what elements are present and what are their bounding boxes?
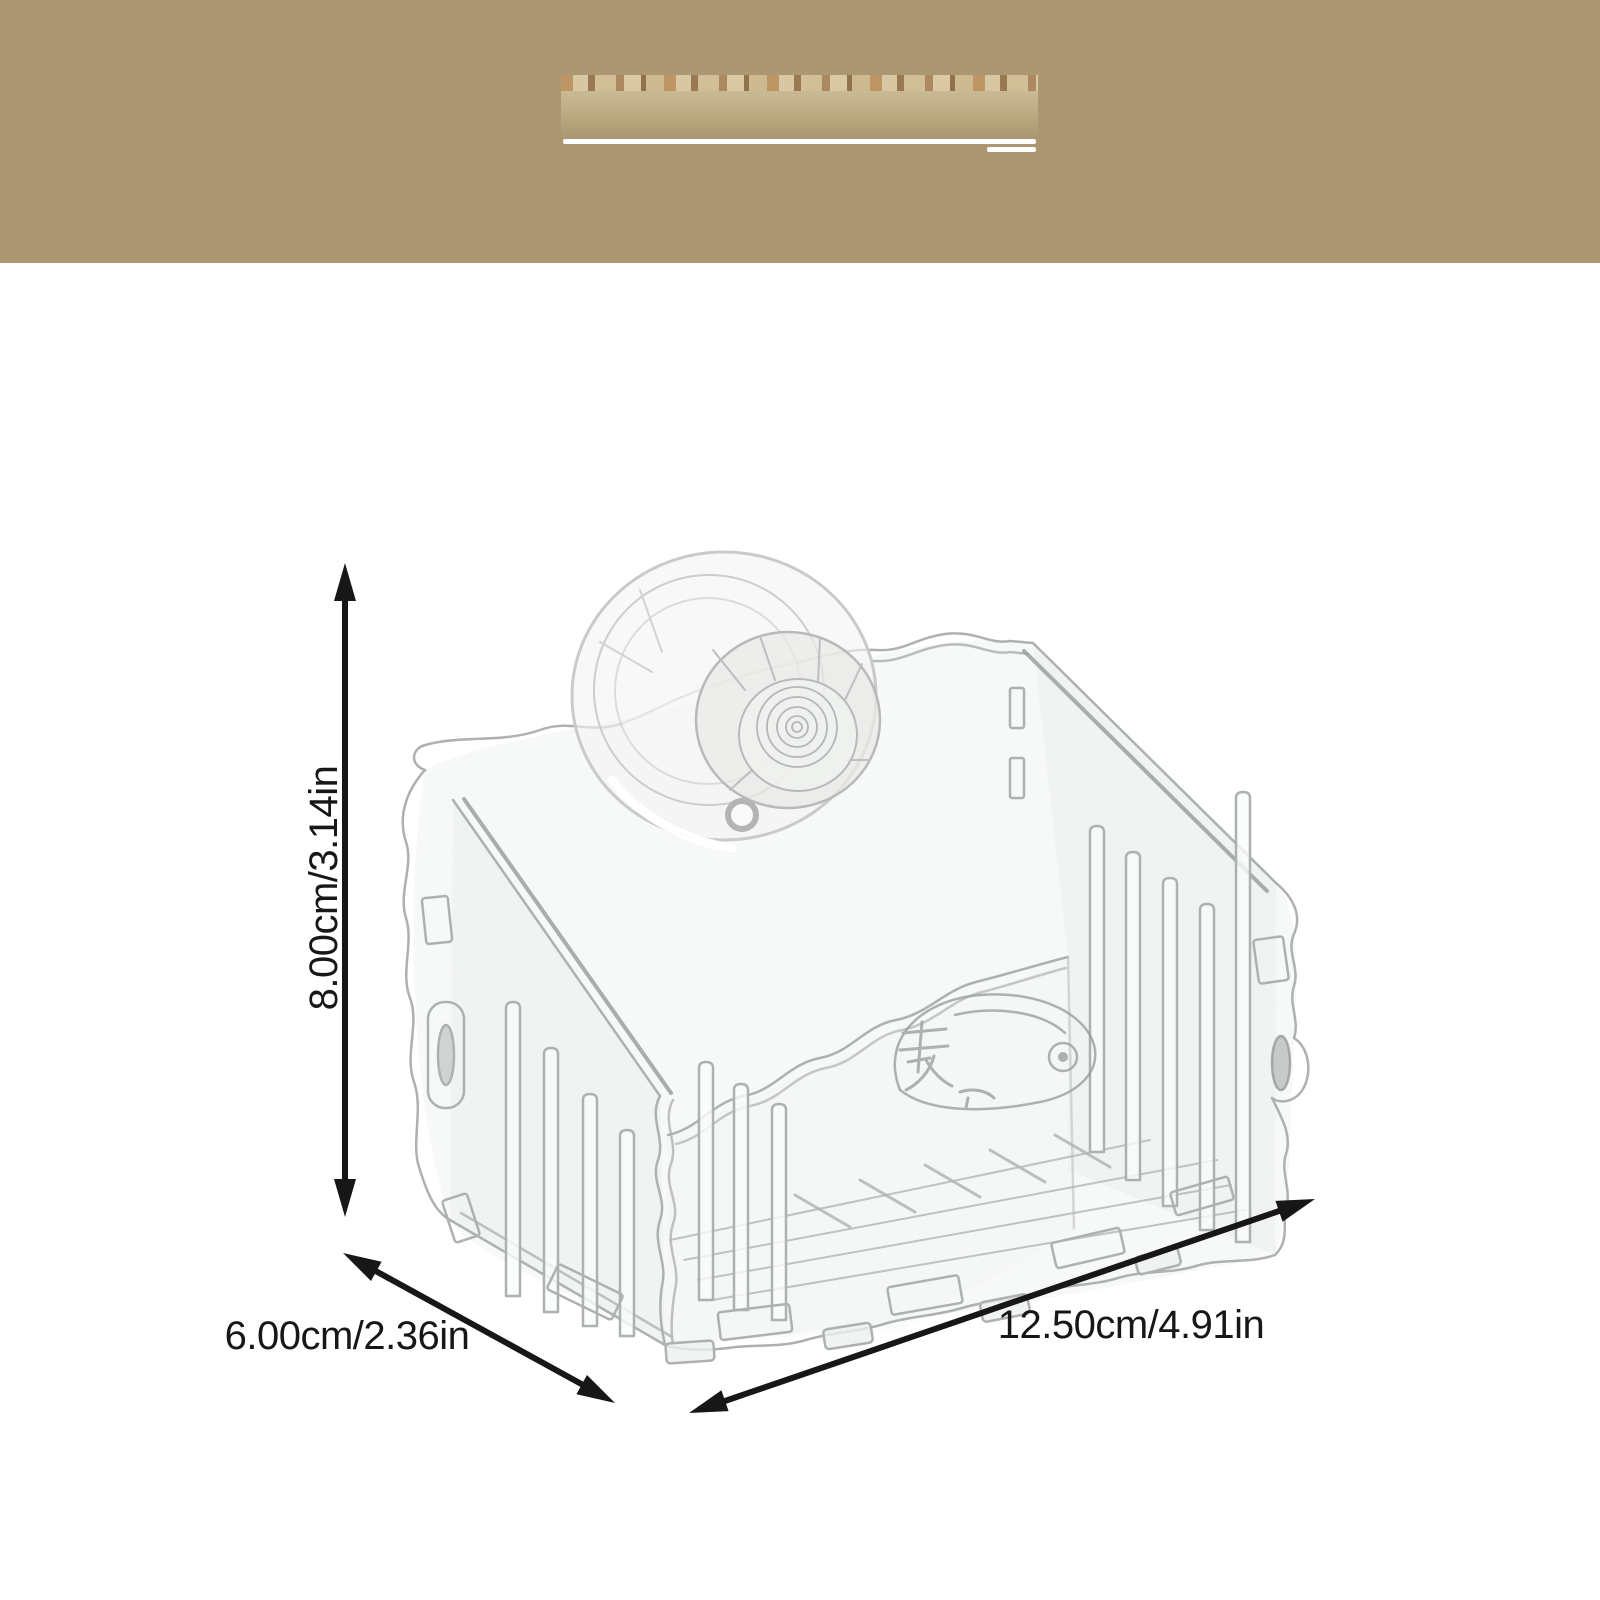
top-banner <box>0 0 1600 263</box>
product-dimension-image: 8.00cm/3.14in 6.00cm/2.36in 12.50cm/4.91… <box>0 0 1600 1600</box>
banner-photo-fragment <box>561 75 1038 137</box>
banner-texture-strip <box>561 75 1038 91</box>
product-photo: 8.00cm/3.14in 6.00cm/2.36in 12.50cm/4.91… <box>0 263 1600 1600</box>
depth-dimension-label: 6.00cm/2.36in <box>225 1314 470 1358</box>
height-dimension-label: 8.00cm/3.14in <box>302 766 346 1011</box>
photo-area: 8.00cm/3.14in 6.00cm/2.36in 12.50cm/4.91… <box>0 263 1600 1600</box>
banner-underline <box>563 139 1036 144</box>
banner-underline-short <box>987 147 1036 152</box>
length-dimension-label: 12.50cm/4.91in <box>998 1303 1265 1347</box>
